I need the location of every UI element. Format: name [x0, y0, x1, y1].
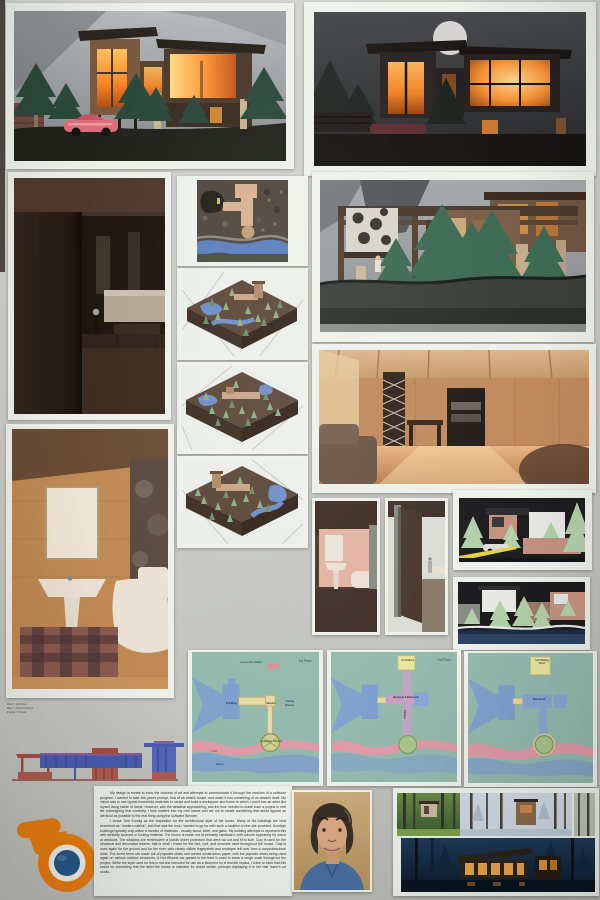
site-iso-2-illustration — [182, 366, 303, 450]
floor-plan-1-map — [192, 652, 319, 782]
exterior-night-illustration — [314, 12, 586, 166]
collage-green-forest-cabin — [397, 793, 460, 836]
green-forest-illustration — [397, 793, 460, 836]
plan2-bedroom-bathroom-label: Bedroom & Bathroom — [388, 696, 424, 699]
photo-street-view-flat — [453, 490, 592, 570]
plan1-sculpture-garden-label: Sculpture Garden — [258, 740, 284, 743]
floor-plan-2-map — [331, 652, 457, 782]
photo-architect-portrait — [292, 790, 372, 892]
plan2-art-gallery-label: Art Gallery — [399, 659, 416, 662]
living-interior-illustration — [319, 350, 589, 484]
hallway-small-illustration — [388, 501, 445, 632]
poster-left-edge-shadow — [0, 0, 5, 272]
statement-paragraph-2: I chose Tom Kundig as the inspiration fo… — [100, 819, 286, 874]
site-iso-3-illustration — [182, 460, 303, 544]
bedroom-interior-illustration — [14, 178, 165, 414]
photo-hallway-interior-small — [385, 498, 448, 635]
water-view-flat-illustration — [458, 582, 585, 644]
photo-exterior-dusk — [6, 3, 294, 169]
exterior-dusk-illustration — [14, 11, 286, 161]
photo-bedroom-interior — [8, 172, 171, 420]
plan2-library-label: Library — [403, 710, 406, 719]
plan2-title: 2nd Floor — [431, 658, 457, 662]
photo-bathroom-interior-large — [6, 424, 174, 698]
collage-pale-forest-strip — [574, 793, 595, 836]
photo-reference-collage — [393, 788, 599, 896]
architect-portrait-illustration — [294, 792, 370, 890]
blender-logo-svg — [13, 815, 101, 897]
snowy-forest-illustration — [460, 793, 572, 836]
photo-site-iso-3 — [177, 456, 308, 548]
elevation-illustration — [4, 728, 184, 786]
diagram-roof-plan: Tall Sliding Roof Main Roof — [464, 651, 597, 787]
project-poster-board: Guest Bed/Bath → 1st Floor Parking Studi… — [0, 0, 600, 900]
plan1-river-label: River — [213, 762, 227, 766]
diagram-floor-plan-1: Guest Bed/Bath → 1st Floor Parking Studi… — [188, 650, 323, 786]
photo-water-view-flat — [453, 577, 590, 650]
blender-logo-icon — [13, 815, 101, 897]
photo-site-map-topdown — [177, 176, 308, 266]
pale-forest-illustration — [574, 793, 595, 836]
photo-model-closeup-trees — [312, 172, 594, 342]
collage-night-house-wide — [401, 838, 595, 892]
photo-bathroom-interior-small — [312, 498, 380, 635]
photo-site-iso-1 — [177, 268, 308, 360]
site-iso-1-illustration — [182, 272, 303, 356]
plan1-parking-label: Parking — [222, 701, 241, 705]
collage-snowy-tower-cabin — [460, 793, 572, 836]
plan1-title: 1st Floor — [292, 659, 318, 663]
plan1-living-room-label: Living Room — [281, 699, 298, 707]
drawing-elevation — [4, 728, 184, 786]
statement-paragraph-1: My design is meant to echo the concept o… — [100, 791, 286, 818]
bathroom-interior-illustration — [12, 429, 168, 689]
plan3-tall-sliding-roof-label: Tall Sliding Roof — [532, 659, 552, 665]
diagram-floor-plan-2: 2nd Floor Art Gallery Bedroom & Bathroom… — [327, 650, 461, 786]
photo-site-iso-2 — [177, 362, 308, 454]
photo-living-interior — [312, 344, 596, 493]
plan3-main-roof-label: Main Roof — [531, 698, 547, 701]
night-house-illustration — [401, 838, 595, 892]
plan1-guest-callout: Guest Bed/Bath → — [226, 661, 266, 665]
street-view-flat-illustration — [459, 498, 585, 562]
photo-exterior-night — [304, 2, 596, 176]
site-map-illustration — [197, 180, 288, 262]
statement-text: My design is meant to echo the concept o… — [100, 791, 286, 891]
statement-sheet: My design is meant to echo the concept o… — [94, 786, 292, 896]
model-closeup-illustration — [320, 180, 586, 332]
elevation-legend: Red = 1st Floor Blue = Second Floor Purp… — [7, 703, 33, 714]
plan1-trail-label: Trail — [207, 749, 221, 753]
plan1-studio-label: Studio — [264, 701, 278, 705]
roof-plan-map — [468, 653, 593, 783]
bathroom-small-illustration — [315, 501, 377, 632]
legend-purple-line: Purple = Roofs — [7, 711, 33, 715]
